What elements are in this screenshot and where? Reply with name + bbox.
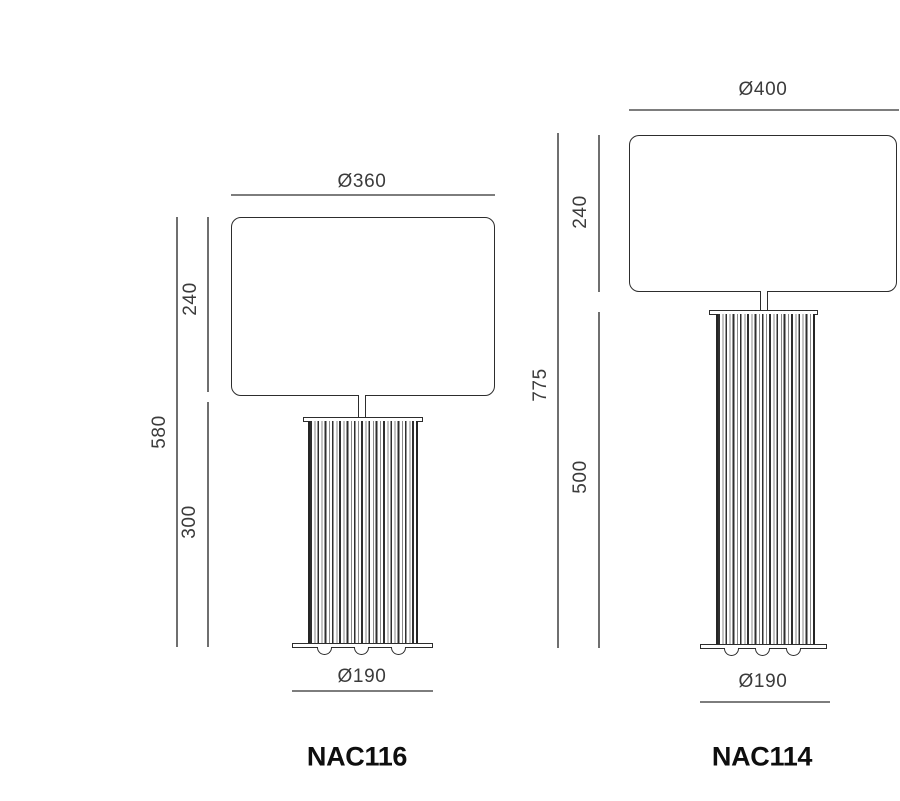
lamp-column — [308, 421, 418, 643]
lamp-foot — [755, 648, 770, 656]
lamp-foot — [317, 647, 332, 655]
dim-label-total-height: 580 — [149, 415, 171, 449]
lamp-foot — [786, 648, 801, 656]
dim-label-base-diameter: Ø190 — [338, 666, 387, 688]
lamp-shade — [629, 135, 897, 292]
dim-line-shade-height — [207, 217, 209, 392]
dim-line-shade-height — [598, 135, 600, 292]
dim-line-base-diameter — [292, 690, 433, 692]
dim-label-total-height: 775 — [530, 368, 552, 402]
technical-drawing-canvas: Ø360 580 240 300 Ø190 NAC116 Ø400 — [0, 0, 900, 801]
lamp-foot — [354, 647, 369, 655]
dim-label-shade-height: 240 — [570, 195, 592, 229]
dim-line-shade-diameter — [231, 194, 495, 196]
dim-line-total-height — [557, 133, 559, 648]
dim-label-shade-diameter: Ø360 — [338, 171, 387, 193]
dim-line-base-diameter — [700, 701, 830, 703]
lamp-foot — [724, 648, 739, 656]
dim-line-column-height — [207, 402, 209, 647]
model-label-nac114: NAC114 — [712, 742, 812, 773]
dim-line-total-height — [176, 217, 178, 647]
lamp-stem — [358, 395, 366, 418]
lamp-shade — [231, 217, 495, 396]
dim-line-column-height — [598, 312, 600, 648]
model-label-nac116: NAC116 — [307, 742, 407, 773]
dim-label-column-height: 500 — [570, 460, 592, 494]
dim-label-base-diameter: Ø190 — [739, 671, 788, 693]
dim-label-shade-height: 240 — [180, 282, 202, 316]
lamp-column — [716, 314, 815, 644]
dim-label-column-height: 300 — [179, 505, 201, 539]
lamp-stem — [760, 291, 768, 311]
dim-label-shade-diameter: Ø400 — [739, 79, 788, 101]
lamp-foot — [391, 647, 406, 655]
dim-line-shade-diameter — [629, 109, 899, 111]
